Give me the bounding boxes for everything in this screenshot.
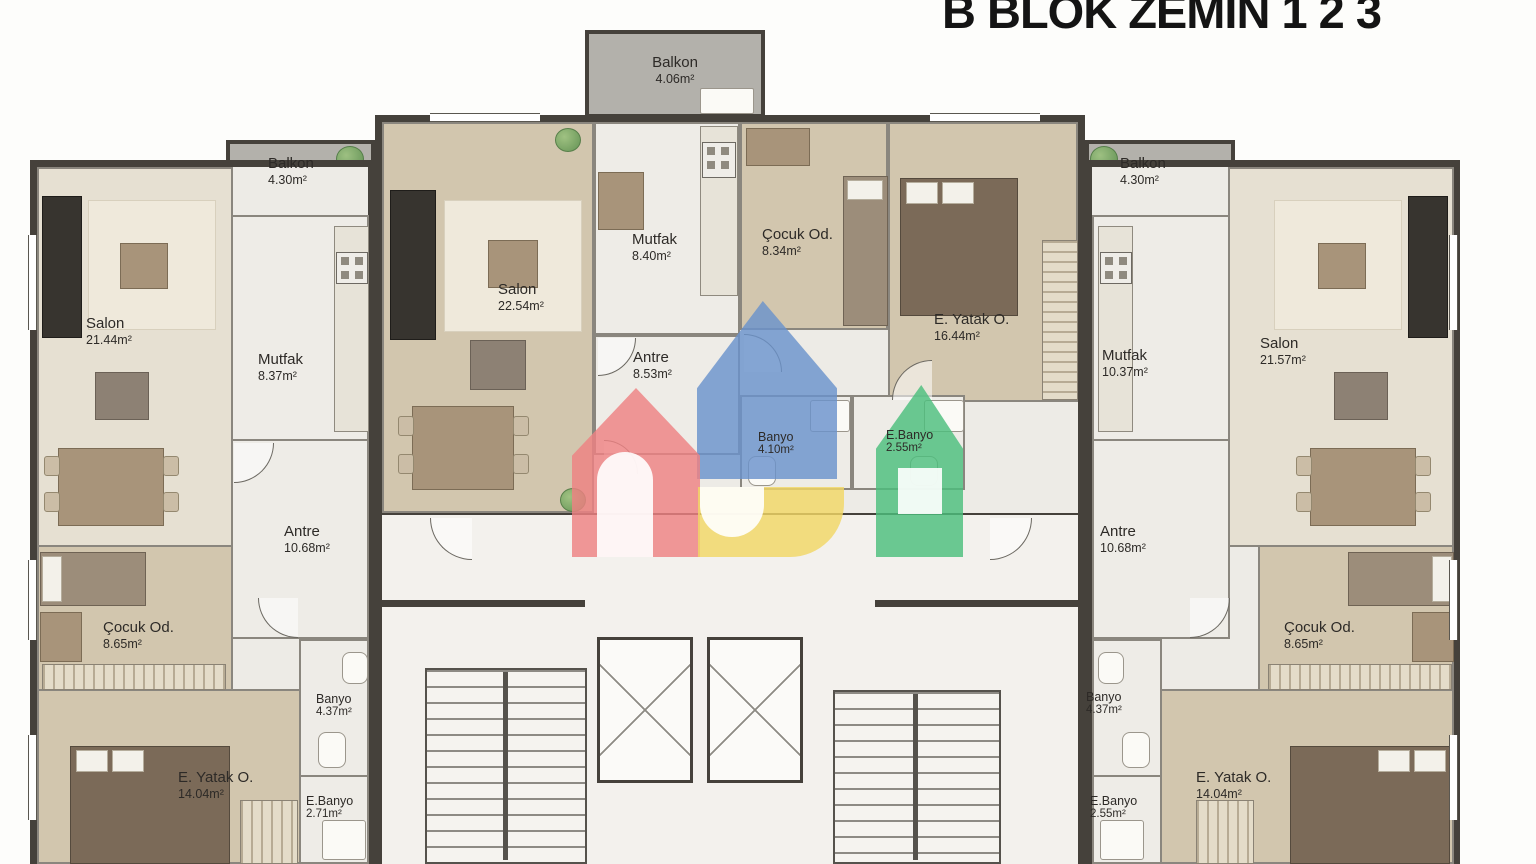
plant-icon	[555, 128, 581, 152]
room-name: E. Yatak O.	[1196, 770, 1271, 787]
room-area: 4.37m²	[316, 706, 352, 719]
chair	[44, 492, 60, 512]
room-label-yatak-center: E. Yatak O. 16.44m²	[934, 312, 1009, 343]
room-name: Banyo	[1086, 690, 1122, 704]
pillow	[112, 750, 144, 772]
stair-rail	[503, 672, 508, 860]
chair	[1296, 492, 1312, 512]
room-area: 8.34m²	[762, 244, 833, 258]
floor-plan: B BLOK ZEMİN 1 2 3	[0, 0, 1536, 864]
room-name: Çocuk Od.	[762, 227, 833, 244]
room-area: 21.57m²	[1260, 353, 1306, 367]
room-label-cocuk-right: Çocuk Od. 8.65m²	[1284, 620, 1355, 651]
watermark-door-cutout	[597, 452, 653, 557]
chair	[513, 454, 529, 474]
balcony-bench	[700, 88, 754, 114]
wardrobe	[1042, 240, 1078, 400]
room-label-mutfak-right: Mutfak 10.37m²	[1102, 348, 1148, 379]
wardrobe	[42, 664, 226, 690]
armchair	[470, 340, 526, 390]
toilet	[318, 732, 346, 768]
pillow	[906, 182, 938, 204]
armchair	[95, 372, 149, 420]
sofa	[390, 190, 436, 340]
room-area: 14.04m²	[178, 787, 253, 801]
room-label-mutfak-center: Mutfak 8.40m²	[632, 232, 677, 263]
wardrobe	[1196, 800, 1254, 864]
room-name: E.Banyo	[306, 794, 353, 808]
room-name: Antre	[1100, 524, 1146, 541]
window	[1449, 735, 1458, 820]
dining-table	[412, 406, 514, 490]
watermark-window-cutout	[898, 468, 942, 514]
chair	[1296, 456, 1312, 476]
room-name: Antre	[284, 524, 330, 541]
sofa	[42, 196, 82, 338]
kitchen-table	[598, 172, 644, 230]
chair	[398, 454, 414, 474]
pillow	[42, 556, 62, 602]
armchair	[1334, 372, 1388, 420]
page-title: B BLOK ZEMİN 1 2 3	[942, 0, 1381, 39]
room-name: Salon	[86, 316, 132, 333]
window	[1449, 560, 1458, 640]
stove-icon	[702, 142, 736, 178]
room-area: 8.40m²	[632, 249, 677, 263]
desk	[1412, 612, 1454, 662]
room-area: 4.30m²	[1120, 173, 1166, 187]
room-area: 2.55m²	[1090, 808, 1137, 821]
chair	[163, 492, 179, 512]
room-name: Çocuk Od.	[103, 620, 174, 637]
room-name: Mutfak	[1102, 348, 1148, 365]
window	[28, 560, 37, 640]
room-area: 21.44m²	[86, 333, 132, 347]
room-area: 8.53m²	[633, 367, 672, 381]
window	[28, 235, 37, 330]
room-area: 4.30m²	[268, 173, 314, 187]
room-area: 8.37m²	[258, 369, 303, 383]
room-area: 10.37m²	[1102, 365, 1148, 379]
room-area: 4.06m²	[612, 72, 738, 86]
room-area: 2.71m²	[306, 808, 353, 821]
room-name: E.Banyo	[886, 428, 933, 442]
room-name: Antre	[633, 350, 672, 367]
room-name: Balkon	[612, 55, 738, 72]
room-name: Banyo	[316, 692, 352, 706]
room-label-balkon-left: Balkon 4.30m²	[268, 156, 314, 187]
room-label-banyo-right: Banyo 4.37m²	[1086, 690, 1122, 717]
window	[28, 735, 37, 820]
window	[430, 113, 540, 122]
room-area: 14.04m²	[1196, 787, 1271, 801]
room-name: E. Yatak O.	[934, 312, 1009, 329]
room-label-antre-left: Antre 10.68m²	[284, 524, 330, 555]
room-area: 16.44m²	[934, 329, 1009, 343]
room-name: Salon	[1260, 336, 1306, 353]
chair	[1415, 492, 1431, 512]
window	[1449, 235, 1458, 330]
stove-icon	[336, 252, 368, 284]
pillow	[847, 180, 883, 200]
toilet	[1122, 732, 1150, 768]
room-name: Balkon	[1120, 156, 1166, 173]
shower	[1100, 820, 1144, 860]
room-label-salon-center: Salon 22.54m²	[498, 282, 544, 313]
room-name: Salon	[498, 282, 544, 299]
room-area: 10.68m²	[1100, 541, 1146, 555]
chair	[1415, 456, 1431, 476]
room-name: E.Banyo	[1090, 794, 1137, 808]
room-label-balkon-center: Balkon 4.06m²	[612, 55, 738, 86]
desk	[40, 612, 82, 662]
pillow	[76, 750, 108, 772]
dining-table	[58, 448, 164, 526]
coffee-table	[1318, 243, 1366, 289]
elevator-shaft	[597, 637, 693, 783]
stair-rail	[913, 694, 918, 860]
room-label-antre-center: Antre 8.53m²	[633, 350, 672, 381]
room-label-yatak-right: E. Yatak O. 14.04m²	[1196, 770, 1271, 801]
room-label-salon-left: Salon 21.44m²	[86, 316, 132, 347]
dining-table	[1310, 448, 1416, 526]
room-label-banyo-center: Banyo 4.10m²	[758, 430, 794, 457]
sink	[1098, 652, 1124, 684]
pillow	[1414, 750, 1446, 772]
room-area: 8.65m²	[1284, 637, 1355, 651]
core-wall	[375, 600, 585, 607]
room-label-cocuk-left: Çocuk Od. 8.65m²	[103, 620, 174, 651]
room-name: Mutfak	[632, 232, 677, 249]
window	[930, 113, 1040, 122]
chair	[513, 416, 529, 436]
sink	[342, 652, 368, 684]
room-area: 10.68m²	[284, 541, 330, 555]
wardrobe	[1268, 664, 1452, 690]
room-label-ebanyo-right: E.Banyo 2.55m²	[1090, 794, 1137, 821]
stove-icon	[1100, 252, 1132, 284]
room-label-banyo-left: Banyo 4.37m²	[316, 692, 352, 719]
room-area: 4.10m²	[758, 444, 794, 457]
room-name: Mutfak	[258, 352, 303, 369]
room-label-salon-right: Salon 21.57m²	[1260, 336, 1306, 367]
room-label-balkon-right: Balkon 4.30m²	[1120, 156, 1166, 187]
elevator-shaft	[707, 637, 803, 783]
room-label-ebanyo-center: E.Banyo 2.55m²	[886, 428, 933, 455]
room-area: 2.55m²	[886, 442, 933, 455]
desk	[746, 128, 810, 166]
pillow	[1378, 750, 1410, 772]
room-area: 22.54m²	[498, 299, 544, 313]
chair	[163, 456, 179, 476]
room-label-yatak-left: E. Yatak O. 14.04m²	[178, 770, 253, 801]
room-label-mutfak-left: Mutfak 8.37m²	[258, 352, 303, 383]
wardrobe	[240, 800, 298, 864]
room-label-cocuk-center: Çocuk Od. 8.34m²	[762, 227, 833, 258]
coffee-table	[120, 243, 168, 289]
chair	[398, 416, 414, 436]
room-area: 4.37m²	[1086, 704, 1122, 717]
room-name: Balkon	[268, 156, 314, 173]
chair	[44, 456, 60, 476]
room-name: Çocuk Od.	[1284, 620, 1355, 637]
core-wall	[875, 600, 1085, 607]
shower	[322, 820, 366, 860]
room-name: E. Yatak O.	[178, 770, 253, 787]
sofa	[1408, 196, 1448, 338]
pillow	[942, 182, 974, 204]
room-name: Banyo	[758, 430, 794, 444]
room-area: 8.65m²	[103, 637, 174, 651]
room-label-antre-right: Antre 10.68m²	[1100, 524, 1146, 555]
room-label-ebanyo-left: E.Banyo 2.71m²	[306, 794, 353, 821]
